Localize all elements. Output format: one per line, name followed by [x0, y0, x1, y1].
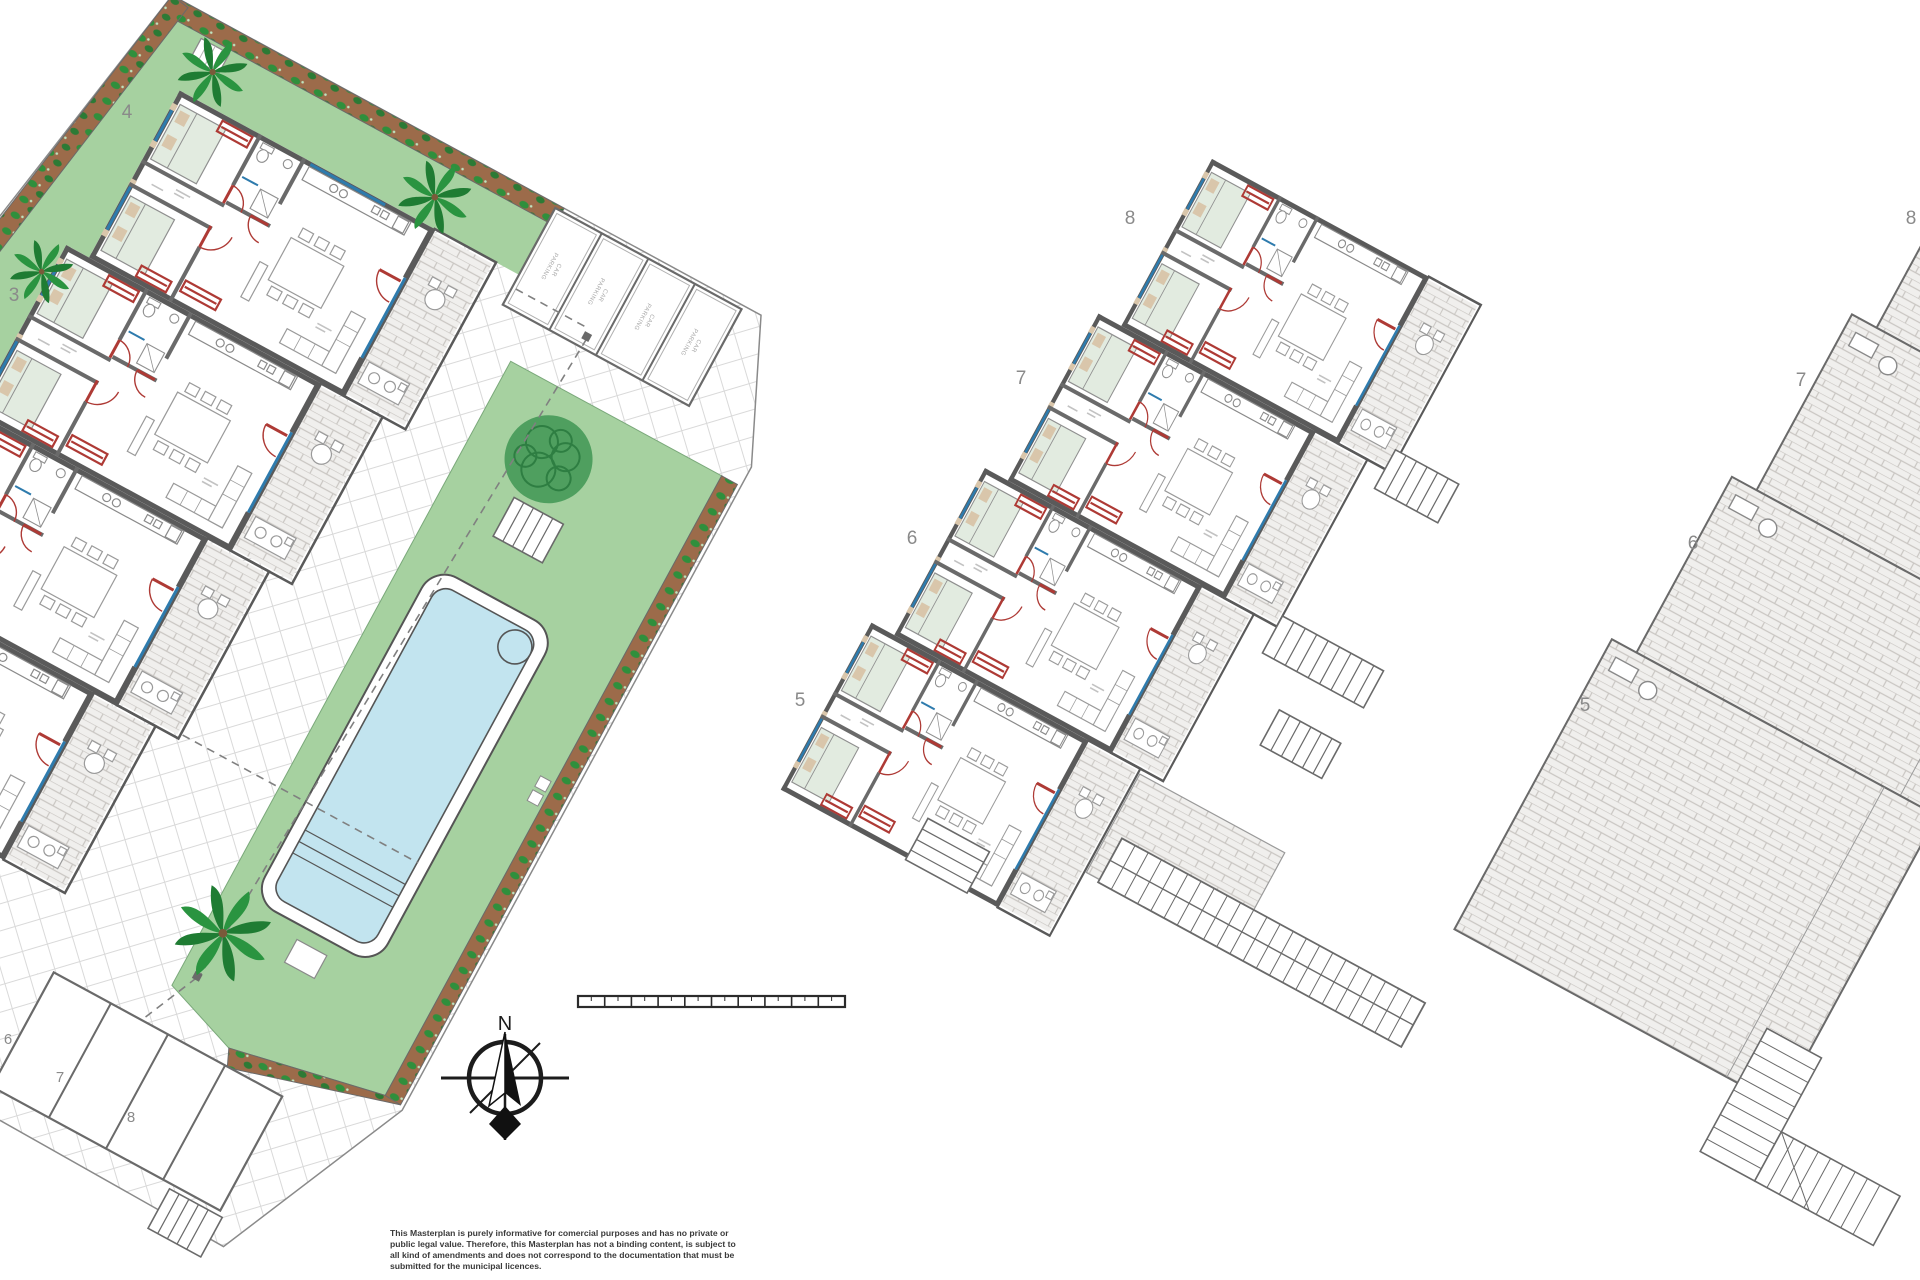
plot-number: 3 [9, 285, 20, 306]
stairs [1260, 710, 1341, 779]
disclaimer-line: public legal value. Therefore, this Mast… [390, 1239, 736, 1249]
scale-bar [578, 996, 845, 1007]
right-building: 8 7 6 5 [1417, 112, 1920, 1245]
unit-number: 7 [1016, 368, 1027, 389]
disclaimer-line: all kind of amendments and does not corr… [390, 1250, 734, 1260]
unit-number: 6 [1688, 533, 1699, 554]
disclaimer-line: submitted for the municipal licences. [390, 1261, 541, 1271]
plot-number: 4 [122, 102, 133, 123]
north-label: N [498, 1013, 512, 1035]
disclaimer-line: This Masterplan is purely informative fo… [390, 1228, 729, 1238]
unit-number: 8 [1125, 208, 1136, 229]
left-complex: CAR PARKING CAR PARKING CAR PARKING CAR … [0, 0, 817, 1280]
masterplan-drawing: CAR PARKING CAR PARKING CAR PARKING CAR … [0, 0, 1920, 1280]
north-arrow: N [441, 1013, 569, 1140]
stairs [1262, 616, 1383, 708]
unit-number: 6 [907, 528, 918, 549]
disclaimer: This Masterplan is purely informative fo… [390, 1228, 736, 1271]
unit-number: 7 [1796, 370, 1807, 391]
parking-number: 6 [4, 1031, 12, 1048]
unit-number: 5 [795, 690, 806, 711]
parking-number: 7 [56, 1069, 64, 1086]
masterplan-page: CAR PARKING CAR PARKING CAR PARKING CAR … [0, 0, 1920, 1280]
unit-number: 8 [1906, 208, 1917, 229]
unit-number: 5 [1580, 695, 1591, 716]
parking-number: 8 [127, 1109, 135, 1126]
